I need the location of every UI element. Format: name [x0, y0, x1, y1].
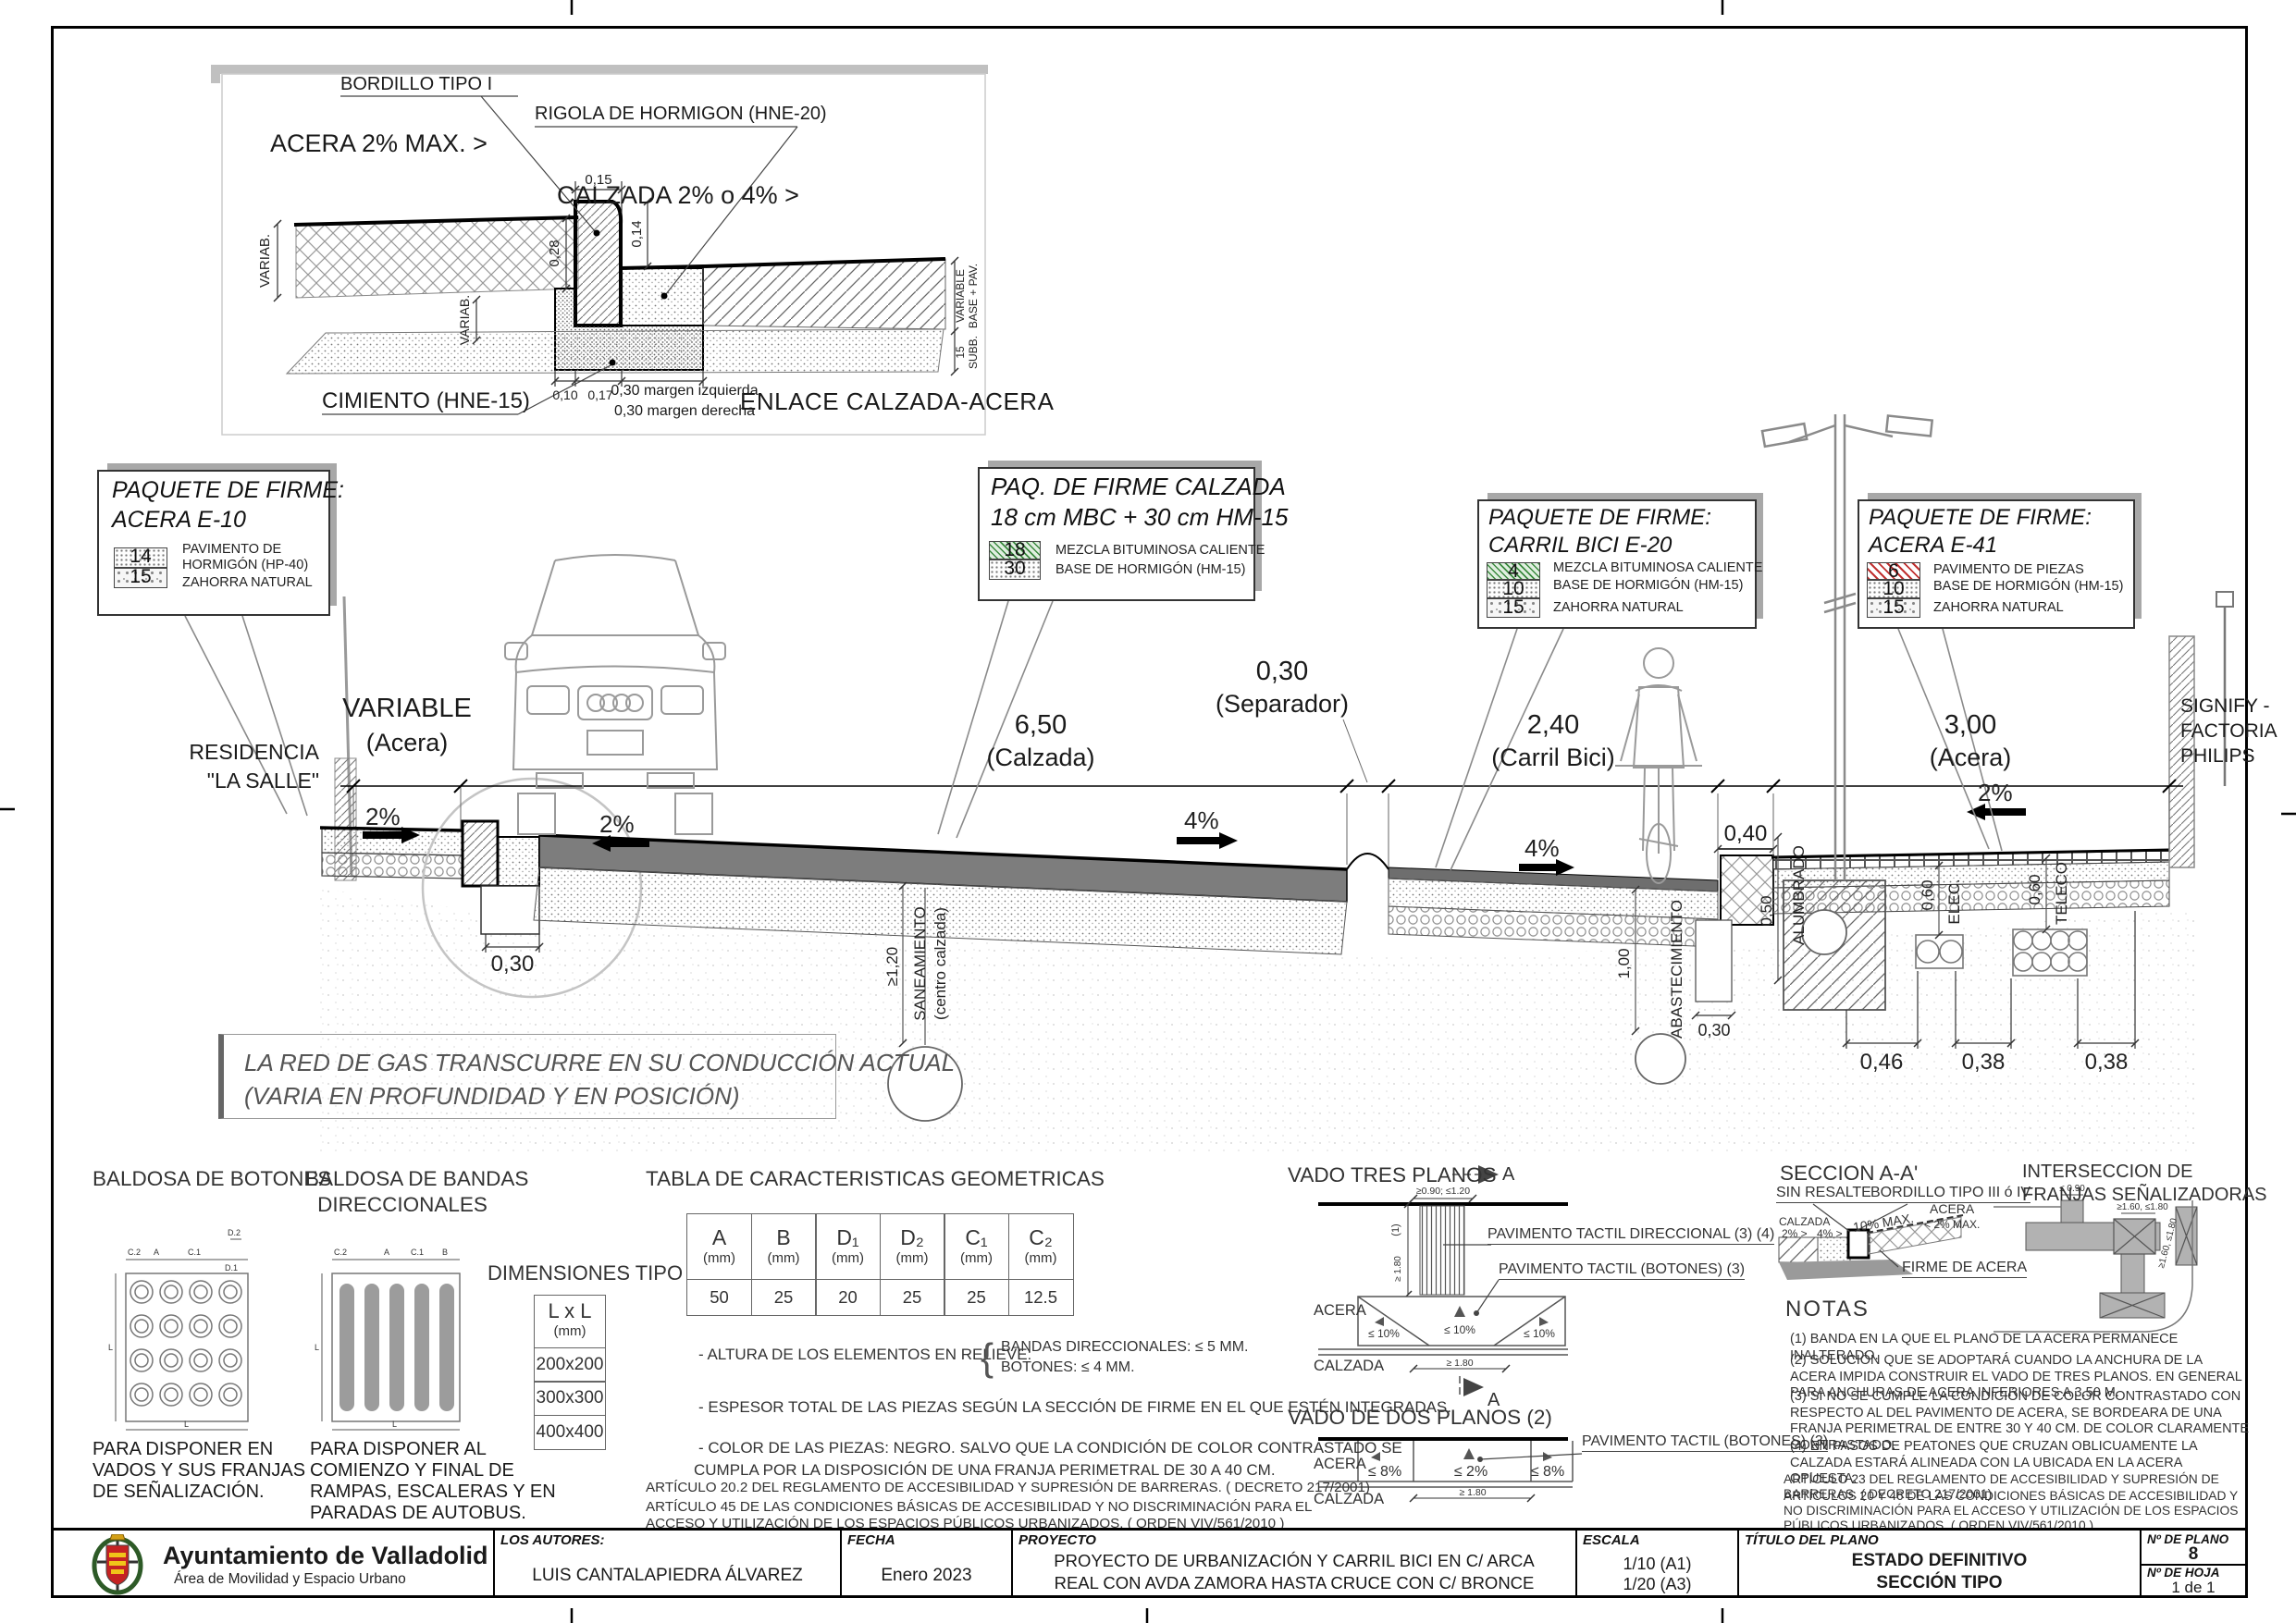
vado3-title: VADO TRES PLANOS: [1288, 1163, 1496, 1187]
swatch-pavimento-hormigon: 14: [114, 547, 167, 568]
tabla-articulo-2: ARTÍCULO 45 DE LAS CONDICIONES BÁSICAS D…: [646, 1499, 1312, 1515]
vado3-dim-v: ≥ 1.80: [1393, 1256, 1403, 1282]
label-signify-3: PHILIPS: [2180, 744, 2277, 768]
label-abastecimiento: ABASTECIMIENTO: [1668, 900, 1685, 1039]
tabla-articulo-1: ARTÍCULO 20.2 DEL REGLAMENTO DE ACCESIBI…: [646, 1480, 1370, 1495]
callout-e20-desc-3: ZAHORRA NATURAL: [1553, 600, 1755, 616]
botones-caption-3: DE SEÑALIZACIÓN.: [93, 1482, 305, 1503]
gas-note-line-2: (VARIA EN PROFUNDIDAD Y EN POSICIÓN): [244, 1079, 835, 1113]
tabla-geometricas: A(mm) 50 B(mm) 25 D₁(mm) 20 D₂(mm) 25 C₁…: [686, 1213, 1074, 1316]
dim-calzada-sub: (Calzada): [962, 744, 1119, 772]
escala-label: ESCALA: [1583, 1532, 1640, 1548]
detail-dim-right-variable-1: VARIABLE: [954, 269, 967, 323]
detail-dim-010: 0,10: [552, 387, 577, 402]
bandas-dim-c1: C.1: [411, 1248, 424, 1257]
detail-dim-right-sub-2: SUBB.: [967, 336, 980, 369]
titleblock-escala-cell: ESCALA 1/10 (A1) 1/20 (A3): [1575, 1531, 1737, 1595]
vado3-label-botones: PAVIMENTO TACTIL (BOTONES) (3): [1499, 1261, 1745, 1280]
swatch-zahorra: 15: [114, 568, 167, 588]
dimensiones-title: DIMENSIONES TIPO: [488, 1261, 683, 1285]
bandas-dim-c2: C.2: [334, 1248, 347, 1257]
vado2-slope-center: ≤ 2%: [1454, 1464, 1487, 1480]
dim-variable-sub: (Acera): [338, 729, 476, 757]
callout-e20-desc-2: BASE DE HORMIGÓN (HM-15): [1553, 578, 1755, 594]
vado2-dim-bottom: ≥ 1.80: [1459, 1487, 1486, 1498]
dim-046: 0,46: [1860, 1050, 1904, 1075]
swatch-hm15: 30: [989, 559, 1041, 580]
botones-dim-l-h: L: [184, 1420, 189, 1429]
bandas-dim-b: B: [442, 1248, 448, 1257]
vado3-slope-right: ≤ 10%: [1524, 1327, 1555, 1340]
interseccion-title-1: INTERSECCION DE: [2022, 1162, 2192, 1183]
autores-value: LUIS CANTALAPIEDRA ÁLVAREZ: [495, 1566, 840, 1586]
dim-alumbrado-050: 0,50: [1758, 895, 1775, 926]
dim-saneamiento-depth: ≥1,20: [883, 947, 901, 986]
dim-separador: 0,30: [1208, 657, 1356, 687]
dim-acera-right: 3,00: [1896, 710, 2044, 741]
label-residencia-1: RESIDENCIA: [139, 738, 319, 767]
seccion-aa-4pct: 4% >: [1817, 1227, 1843, 1240]
botones-dim-c2: C.2: [128, 1248, 141, 1257]
dim-acera-right-sub: (Acera): [1896, 744, 2044, 772]
dim-030-trench: 0,30: [491, 952, 535, 977]
swatch-zahorra-e41: 15: [1867, 598, 1920, 618]
cyclist-icon: [1615, 648, 1702, 883]
detail-dim-right-variable-2: BASE + PAV.: [967, 264, 980, 328]
callout-calzada-desc-1: MEZCLA BITUMINOSA CALIENTE: [1055, 543, 1254, 559]
titleblock-plano-cell: Nº DE PLANO 8 Nº DE HOJA 1 de 1: [2140, 1531, 2245, 1595]
detail-dim-variab-mid: VARIAB.: [457, 295, 472, 345]
detail-label-calzada: CALZADA 2% o 4% >: [557, 181, 799, 210]
titleblock-autores-cell: LOS AUTORES: LUIS CANTALAPIEDRA ÁLVAREZ: [493, 1531, 840, 1595]
streetlight-icon: [1762, 414, 1932, 880]
botones-caption: PARA DISPONER EN VADOS Y SUS FRANJAS DE …: [93, 1439, 305, 1503]
escala-value-2: 1/20 (A3): [1577, 1575, 1737, 1594]
detail-dim-014: 0,14: [629, 220, 645, 247]
slope-calzada-left: 2%: [599, 810, 635, 838]
vado2-calzada: CALZADA: [1314, 1491, 1384, 1508]
vado3-slope-center: ≤ 10%: [1444, 1323, 1475, 1336]
interseccion-title-2: FRANJAS SEÑALIZADORAS: [2022, 1185, 2267, 1206]
plan-sheet: { "detail": { "title": "ENLACE CALZADA-A…: [0, 0, 2296, 1623]
gas-note: LA RED DE GAS TRANSCURRE EN SU CONDUCCIÓ…: [218, 1034, 836, 1119]
dimensiones-row-300: 300x300: [534, 1381, 606, 1416]
escala-value-1: 1/10 (A1): [1577, 1555, 1737, 1574]
seccion-aa-2pct: 2% >: [1782, 1227, 1808, 1240]
botones-dim-l-v: L: [108, 1343, 113, 1352]
detail-dim-variab-left: VARIAB.: [257, 234, 273, 288]
bandas-title-1: BALDOSA DE BANDAS: [305, 1167, 500, 1191]
callout-e10-title-2: ACERA E-10: [112, 507, 246, 534]
bandas-dim-l-v: L: [315, 1343, 319, 1352]
dimensiones-row-200: 200x200: [534, 1347, 606, 1383]
tabla-title: TABLA DE CARACTERISTICAS GEOMETRICAS: [646, 1167, 1105, 1191]
label-signify-2: FACTORIA: [2180, 719, 2277, 744]
detail-title: ENLACE CALZADA-ACERA: [740, 388, 1054, 416]
titleblock-proyecto-cell: PROYECTO PROYECTO DE URBANIZACIÓN Y CARR…: [1011, 1531, 1575, 1595]
baldosa-bandas-diagram: C.2 A C.1 B L L: [315, 1248, 460, 1430]
label-alumbrado: ALUMBRADO: [1790, 845, 1808, 945]
nhoja-label: Nº DE HOJA: [2147, 1566, 2219, 1580]
bandas-caption-1: PARA DISPONER AL: [310, 1439, 556, 1460]
dim-abastecimiento-030: 0,30: [1697, 1021, 1730, 1039]
dimensiones-table: L x L (mm) 200x200 300x300 400x400: [534, 1295, 606, 1450]
proyecto-label: PROYECTO: [1018, 1532, 1096, 1548]
bandas-title-2: DIRECCIONALES: [305, 1193, 500, 1217]
label-saneamiento-sub: (centro calzada): [932, 907, 949, 1020]
callout-e41-desc-3: ZAHORRA NATURAL: [1933, 600, 2135, 616]
label-saneamiento: SANEAMIENTO: [911, 906, 929, 1020]
dim-teleco-060: 0,60: [2026, 874, 2043, 904]
callout-carril-bici-e20: PAQUETE DE FIRME: CARRIL BICI E-20 4 10 …: [1477, 499, 1757, 629]
dim-separador-sub: (Separador): [1208, 690, 1356, 719]
titulo-line-2: SECCIÓN TIPO: [1739, 1573, 2140, 1593]
tabla-value-b: 25: [751, 1279, 817, 1316]
detail-label-acera: ACERA 2% MAX. >: [270, 129, 488, 158]
title-block: Ayuntamiento de Valladolid Área de Movil…: [51, 1528, 2248, 1598]
callout-firme-calzada: PAQ. DE FIRME CALZADA 18 cm MBC + 30 cm …: [978, 467, 1255, 601]
botones-title: BALDOSA DE BOTONES: [93, 1167, 331, 1191]
bandas-dim-a: A: [384, 1248, 389, 1257]
tabla-nota-altura-b2: BOTONES: ≤ 4 MM.: [1001, 1359, 1135, 1376]
bandas-dim-l-h: L: [392, 1420, 397, 1429]
dim-variable: VARIABLE: [338, 694, 476, 724]
titleblock-fecha-cell: FECHA Enero 2023: [840, 1531, 1011, 1595]
seccion-aa-firme: FIRME DE ACERA: [1902, 1260, 2027, 1278]
label-residencia: RESIDENCIA "LA SALLE": [139, 738, 319, 795]
vado3-marker-top: A: [1502, 1164, 1515, 1185]
callout-e10-title-1: PAQUETE DE FIRME:: [112, 477, 344, 504]
vado3-ref1: (1): [1390, 1223, 1401, 1236]
dim-038-a: 0,38: [1962, 1050, 2006, 1075]
vado3-calzada: CALZADA: [1314, 1358, 1384, 1375]
callout-calzada-title-2: 18 cm MBC + 30 cm HM-15: [991, 503, 1288, 532]
bandas-caption-2: COMIENZO Y FINAL DE: [310, 1460, 556, 1482]
titulo-label: TÍTULO DEL PLANO: [1745, 1532, 1879, 1548]
nhoja-subcell: Nº DE HOJA 1 de 1: [2142, 1564, 2245, 1595]
detail-dim-right-sub-1: 15: [954, 346, 967, 359]
label-signify-1: SIGNIFY -: [2180, 694, 2277, 719]
autores-label: LOS AUTORES:: [500, 1532, 605, 1548]
slope-acera-left: 2%: [365, 803, 401, 830]
bandas-caption: PARA DISPONER AL COMIENZO Y FINAL DE RAM…: [310, 1439, 556, 1524]
org-subtitle: Área de Movilidad y Espacio Urbano: [174, 1571, 406, 1588]
nota-articulos-20-46: ARTÍCULOS 20 Y 46 DE LAS CONDICIONES BÁS…: [1784, 1489, 2248, 1533]
label-residencia-2: "LA SALLE": [139, 767, 319, 795]
fecha-value: Enero 2023: [842, 1566, 1011, 1586]
seccion-aa-sin-resalte: SIN RESALTE: [1776, 1185, 1871, 1203]
callout-e20-title-2: CARRIL BICI E-20: [1488, 533, 1672, 559]
vado2-slope-right: ≤ 8%: [1531, 1464, 1564, 1480]
swatch-hm15-e41: 10: [1867, 580, 1920, 598]
dim-calzada: 6,50: [962, 710, 1119, 741]
vado3-label-direccional: PAVIMENTO TACTIL DIRECCIONAL (3) (4): [1487, 1226, 1774, 1245]
proyecto-line-2: REAL CON AVDA ZAMORA HASTA CRUCE CON C/ …: [1013, 1573, 1575, 1593]
label-elec: ELEC.: [1945, 879, 1963, 924]
dim-carril: 2,40: [1479, 710, 1627, 741]
dim-carril-sub: (Carril Bici): [1479, 744, 1627, 772]
detail-label-cimiento: CIMIENTO (HNE-15): [322, 388, 530, 414]
car-illustration: [505, 555, 725, 834]
detail-label-bordillo: BORDILLO TIPO I: [340, 74, 492, 95]
botones-caption-2: VADOS Y SUS FRANJAS: [93, 1460, 305, 1482]
botones-dim-d2: D.2: [228, 1228, 241, 1237]
callout-e20-title-1: PAQUETE DE FIRME:: [1488, 505, 1711, 531]
nplano-value: 8: [2142, 1544, 2245, 1565]
vado2-acera: ACERA: [1314, 1456, 1366, 1473]
tabla-value-d1: 20: [815, 1279, 881, 1316]
seccion-aa-bordillo: BORDILLO TIPO III ó IV: [1870, 1185, 2031, 1203]
bandas-caption-3: RAMPAS, ESCALERAS Y EN: [310, 1482, 556, 1503]
detail-label-rigola: RIGOLA DE HORMIGON (HNE-20): [535, 104, 827, 125]
tabla-value-d2: 25: [880, 1279, 945, 1316]
callout-acera-e10: PAQUETE DE FIRME: ACERA E-10 14 15 PAVIM…: [97, 470, 330, 616]
label-signify: SIGNIFY - FACTORIA PHILIPS: [2180, 694, 2277, 768]
slope-calzada-right: 4%: [1184, 806, 1219, 834]
slope-acera-right: 2%: [1978, 779, 2013, 806]
callout-e41-title-2: ACERA E-41: [1869, 533, 1997, 559]
org-name: Ayuntamiento de Valladolid: [163, 1542, 488, 1570]
dimensiones-header-2: (mm): [535, 1323, 605, 1339]
callout-acera-e41: PAQUETE DE FIRME: ACERA E-41 6 10 15 PAV…: [1858, 499, 2135, 629]
tabla-value-c2: 12.5: [1008, 1279, 1074, 1316]
swatch-hm15-e20: 10: [1487, 580, 1540, 598]
valladolid-crest-icon: [89, 1534, 146, 1595]
fecha-label: FECHA: [847, 1532, 895, 1548]
titulo-line-1: ESTADO DEFINITIVO: [1739, 1551, 2140, 1571]
dim-040: 0,40: [1713, 821, 1778, 847]
tabla-nota-altura-b1: BANDAS DIRECCIONALES: ≤ 5 MM.: [1001, 1339, 1249, 1356]
baldosa-botones-diagram: C.2 A C.1 D.1 D.2 L L: [108, 1228, 248, 1430]
vado3-acera: ACERA: [1314, 1302, 1366, 1320]
interseccion-diagram: ≤ 0.90 ≥1.60, ≤1.80 ≥1.60, ≤1.80: [1994, 1184, 2197, 1332]
seccion-aa-title: SECCION A-A': [1780, 1162, 1918, 1186]
label-teleco: TELECO: [2053, 862, 2070, 925]
vado2-slope-left: ≤ 8%: [1368, 1464, 1401, 1480]
vado2-title: VADO DE DOS PLANOS (2): [1288, 1406, 1552, 1430]
seccion-aa-acera: ACERA: [1930, 1201, 1975, 1216]
vado3-dim-bottom: ≥ 1.80: [1446, 1358, 1473, 1369]
tabla-value-c1: 25: [944, 1279, 1009, 1316]
callout-e41-desc-1: PAVIMENTO DE PIEZAS: [1933, 562, 2135, 578]
seccion-aa-2max: < 2% MAX.: [1924, 1218, 1980, 1231]
dim-038-b: 0,38: [2085, 1050, 2129, 1075]
tabla-nota-color-1: - COLOR DE LAS PIEZAS: NEGRO. SALVO QUE …: [698, 1439, 1402, 1457]
tabla-value-a: 50: [686, 1279, 752, 1316]
notas-title: NOTAS: [1785, 1297, 1870, 1322]
tabla-nota-color-2: CUMPLA POR LA DISPOSICIÓN DE UNA FRANJA …: [694, 1461, 1276, 1480]
botones-dim-d1: D.1: [225, 1263, 238, 1273]
titleblock-org-cell: Ayuntamiento de Valladolid Área de Movil…: [54, 1531, 493, 1595]
titleblock-titulo-cell: TÍTULO DEL PLANO ESTADO DEFINITIVO SECCI…: [1737, 1531, 2140, 1595]
callout-e10-desc-2: ZAHORRA NATURAL: [182, 575, 326, 591]
botones-caption-1: PARA DISPONER EN: [93, 1439, 305, 1460]
dimensiones-header-1: L x L: [535, 1299, 605, 1323]
bandas-caption-4: PARADAS DE AUTOBUS.: [310, 1503, 556, 1524]
botones-dim-c1: C.1: [188, 1248, 201, 1257]
seccion-aa-calzada: CALZADA: [1779, 1215, 1830, 1228]
proyecto-line-1: PROYECTO DE URBANIZACIÓN Y CARRIL BICI E…: [1013, 1551, 1575, 1571]
tabla-nota-brace: {: [981, 1335, 994, 1380]
callout-e10-desc-1: PAVIMENTO DE HORMIGÓN (HP-40): [182, 542, 321, 573]
callout-e41-desc-2: BASE DE HORMIGÓN (HM-15): [1933, 579, 2135, 595]
callout-calzada-title-1: PAQ. DE FIRME CALZADA: [991, 473, 1286, 501]
dim-elec-060: 0,60: [1919, 879, 1936, 910]
callout-calzada-desc-2: BASE DE HORMIGÓN (HM-15): [1055, 562, 1254, 578]
callout-e20-desc-1: MEZCLA BITUMINOSA CALIENTE: [1553, 560, 1755, 576]
botones-dim-a: A: [154, 1248, 159, 1257]
swatch-zahorra-e20: 15: [1487, 598, 1540, 618]
vado3-slope-left: ≤ 10%: [1368, 1327, 1400, 1340]
nplano-subcell: Nº DE PLANO 8: [2142, 1531, 2245, 1566]
detail-dim-028: 0,28: [547, 240, 562, 266]
swatch-mbc: 18: [989, 541, 1041, 559]
nhoja-value: 1 de 1: [2142, 1579, 2245, 1597]
callout-e41-title-1: PAQUETE DE FIRME:: [1869, 505, 2092, 531]
dim-abastecimiento-depth: 1,00: [1615, 948, 1633, 978]
slope-carril: 4%: [1524, 834, 1560, 862]
gas-note-line-1: LA RED DE GAS TRANSCURRE EN SU CONDUCCIÓ…: [244, 1046, 835, 1079]
